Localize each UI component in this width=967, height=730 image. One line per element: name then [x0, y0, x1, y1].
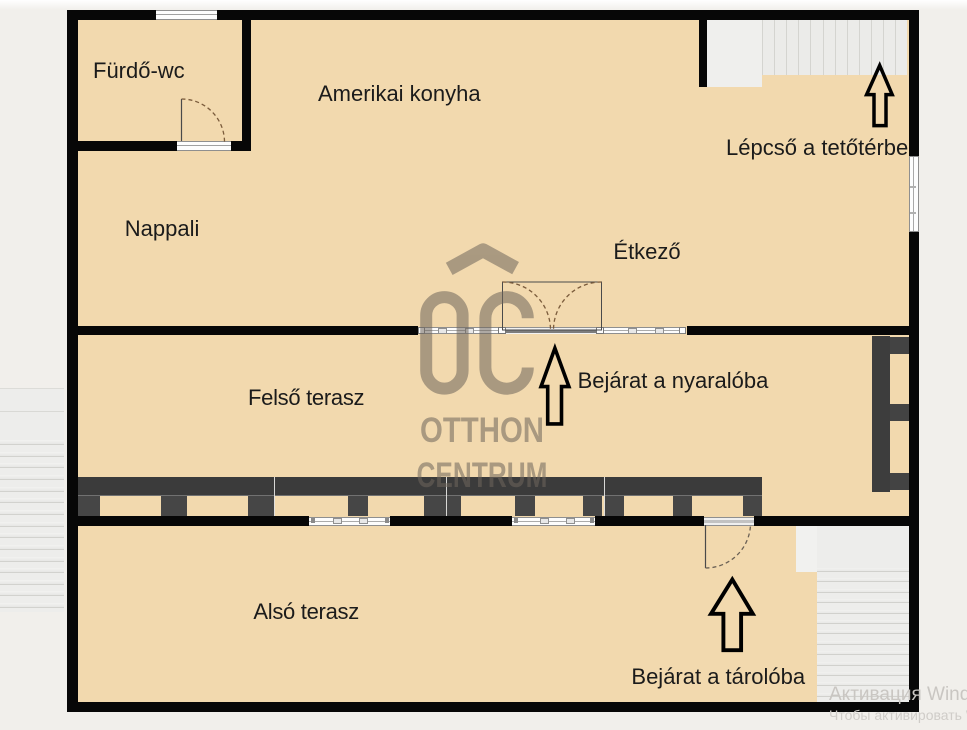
svg-text:OTTHON: OTTHON: [420, 411, 544, 450]
svg-text:CENTRUM: CENTRUM: [417, 456, 548, 495]
